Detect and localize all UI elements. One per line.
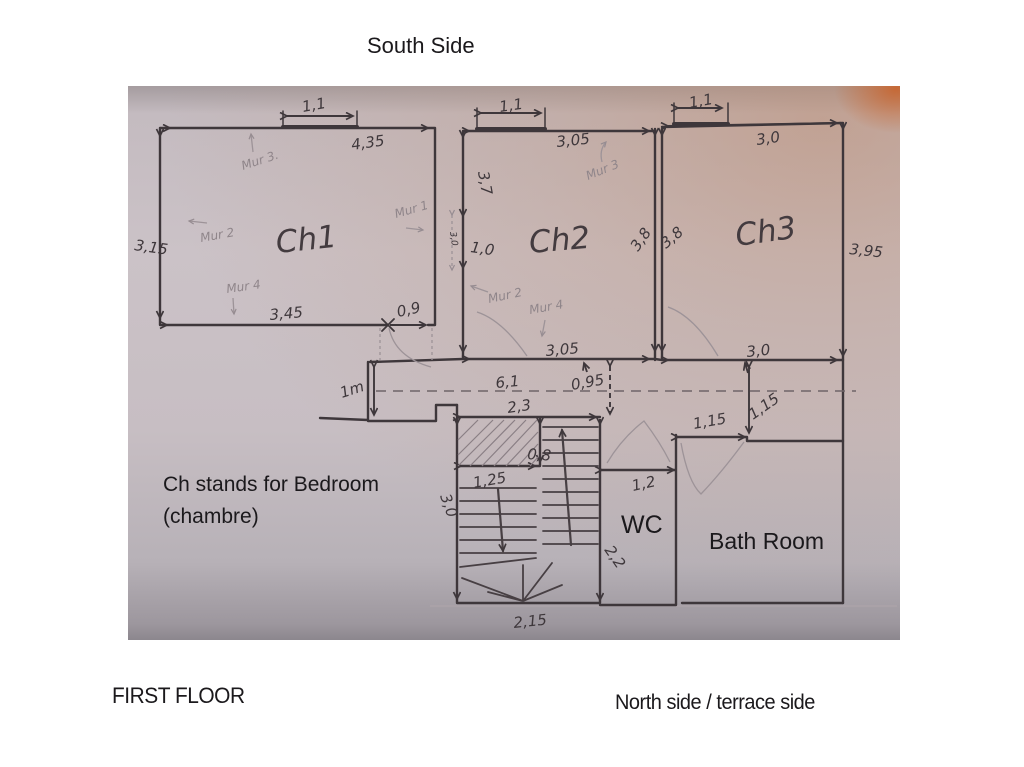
dim-stairs-bottom: 2,15 bbox=[513, 611, 548, 632]
dim-ch2-dashed: 3,0 bbox=[447, 231, 459, 247]
dim-ch3-top: 3,0 bbox=[755, 128, 781, 149]
floor-plan-photo: 1,1 4,35 3,15 3,45 0,9 1,1 3,05 3,7 1,0 … bbox=[0, 0, 1024, 767]
legend-text: Ch stands for Bedroom (chambre) bbox=[163, 469, 379, 533]
south-side-label: South Side bbox=[367, 33, 475, 59]
legend-line2: (chambre) bbox=[163, 501, 379, 533]
floor-plan-page: 1,1 4,35 3,15 3,45 0,9 1,1 3,05 3,7 1,0 … bbox=[0, 0, 1024, 767]
legend-line1: Ch stands for Bedroom bbox=[163, 469, 379, 501]
dim-ch2-top: 3,05 bbox=[556, 130, 591, 151]
dim-flight-width: 0,8 bbox=[527, 445, 552, 465]
bathroom-label: Bath Room bbox=[709, 528, 824, 555]
dim-ch2-window: 1,1 bbox=[498, 95, 524, 116]
north-side-label: North side / terrace side bbox=[615, 691, 815, 715]
dim-ch2-bottom: 3,05 bbox=[545, 339, 580, 360]
dim-ch3-right: 3,95 bbox=[849, 240, 884, 261]
dim-ch1-bottom: 3,45 bbox=[269, 303, 304, 324]
dim-ch2-seg: 1,0 bbox=[469, 238, 495, 259]
first-floor-label: FIRST FLOOR bbox=[112, 683, 245, 709]
room-label-ch2: Ch2 bbox=[528, 220, 592, 261]
dim-corridor-length: 6,1 bbox=[495, 372, 520, 392]
dim-stairs-top: 2,3 bbox=[506, 396, 532, 417]
dim-ch3-bottom: 3,0 bbox=[746, 341, 772, 361]
room-label-ch1: Ch1 bbox=[274, 219, 338, 261]
wc-room-label: WC bbox=[621, 511, 663, 540]
